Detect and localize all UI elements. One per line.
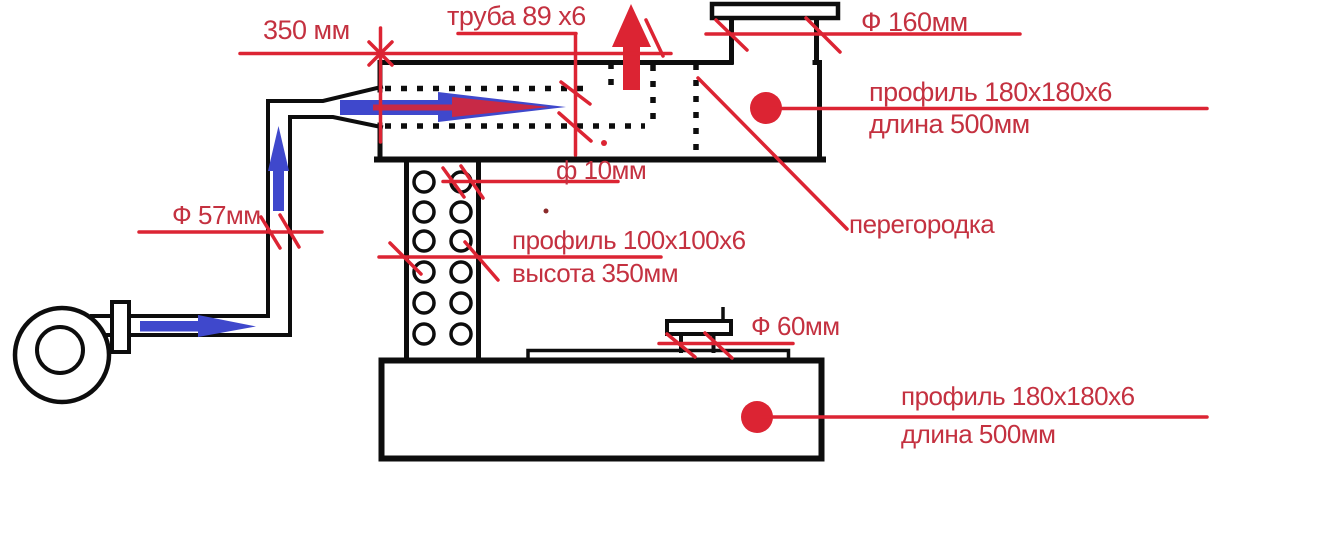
label-profile-top-1: профиль 180х180х6: [869, 78, 1112, 106]
label-profile-bottom-2: длина 500мм: [901, 421, 1056, 448]
pipe-89-leader: [458, 34, 576, 156]
fan-blower: [15, 308, 109, 402]
top-chamber-top-left: [380, 63, 731, 91]
dim-350-tick-right: [646, 20, 663, 56]
furnace-diagram: 350 мм труба 89 х6 Ф 160мм профиль 180х1…: [0, 0, 1317, 534]
label-dim-350: 350 мм: [263, 16, 350, 44]
label-profile-column-1: профиль 100х100х6: [512, 227, 746, 254]
chimney-flange: [712, 4, 838, 18]
fan-inlet: [37, 327, 83, 373]
label-dia-10: ф 10мм: [556, 157, 646, 184]
label-profile-column-2: высота 350мм: [512, 260, 678, 287]
label-dia-60: Ф 60мм: [751, 313, 840, 340]
label-profile-bottom-1: профиль 180х180х6: [901, 383, 1135, 410]
outlet-pipe-flange: [667, 321, 731, 334]
label-dia-57: Ф 57мм: [172, 202, 261, 229]
chimney-pipe: [732, 17, 817, 62]
inlet-pipe-flange: [112, 302, 129, 352]
dim-60-ticks: [667, 333, 732, 358]
label-pipe-top: труба 89 х6: [447, 2, 586, 30]
inner-tube-dashed: [385, 63, 653, 127]
air-arrow-vertical: [268, 126, 289, 211]
dim-pipe-89: [458, 34, 591, 156]
label-profile-top-2: длина 500мм: [869, 110, 1030, 138]
support-column: [407, 162, 479, 358]
top-chamber-right: [815, 63, 820, 161]
exhaust-arrow: [612, 4, 651, 90]
label-partition: перегородка: [849, 211, 994, 238]
label-dia-160: Ф 160мм: [861, 8, 968, 36]
